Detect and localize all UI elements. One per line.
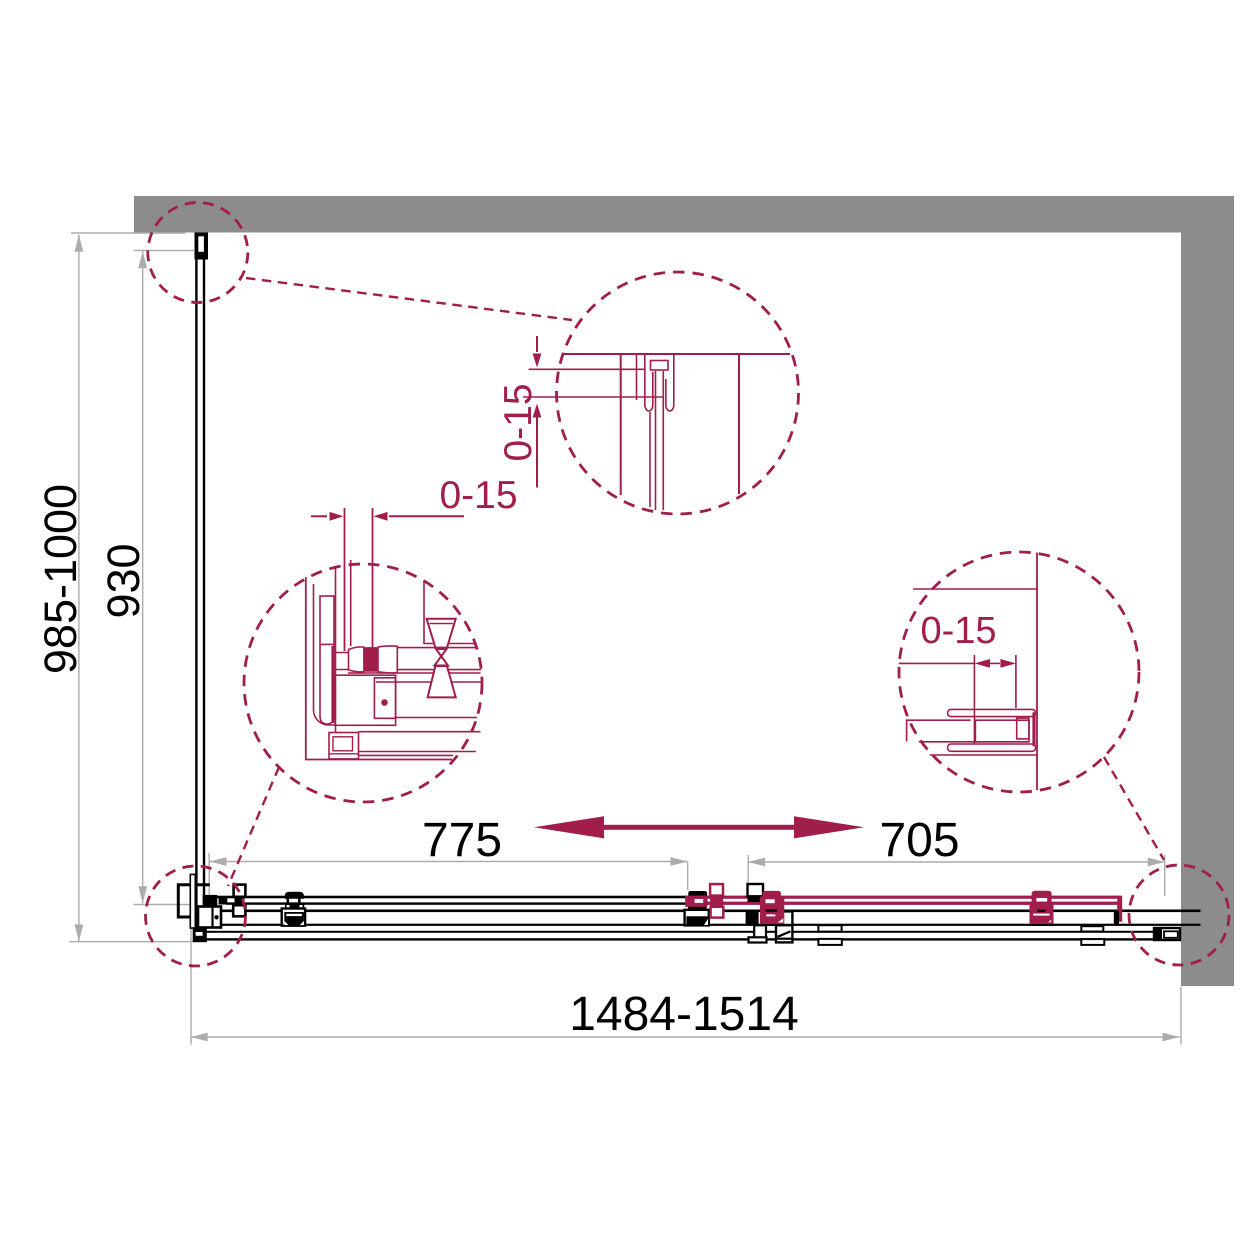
svg-text:0-15: 0-15: [920, 610, 996, 652]
svg-text:985-1000: 985-1000: [35, 484, 86, 674]
svg-text:930: 930: [98, 543, 149, 618]
svg-text:0-15: 0-15: [497, 383, 540, 461]
svg-text:705: 705: [879, 814, 959, 867]
svg-text:0-15: 0-15: [439, 474, 517, 517]
svg-text:775: 775: [422, 814, 502, 867]
svg-text:1484-1514: 1484-1514: [569, 988, 799, 1041]
